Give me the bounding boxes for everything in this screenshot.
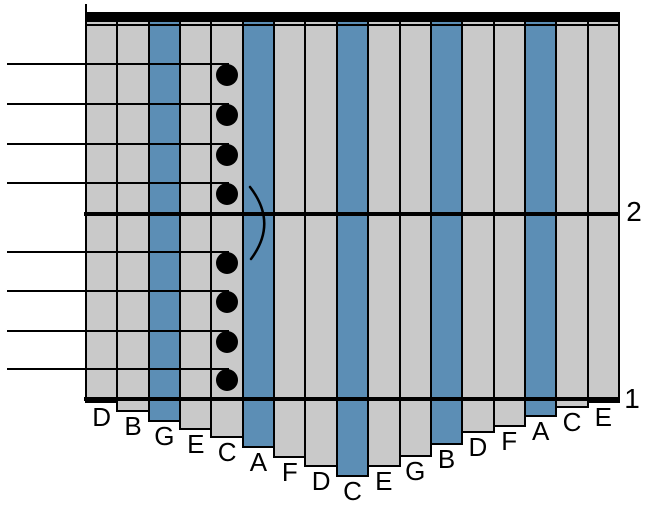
end-double-bar bbox=[85, 12, 620, 20]
tine-d-13[interactable] bbox=[461, 20, 494, 433]
tie-arc bbox=[240, 180, 286, 270]
beat-line-8 bbox=[7, 368, 229, 370]
measure-line-2 bbox=[84, 212, 618, 216]
beat-line-5 bbox=[7, 251, 229, 253]
note-dot-2-c[interactable] bbox=[216, 104, 238, 126]
note-dot-6-c[interactable] bbox=[216, 291, 238, 313]
beat-line-3 bbox=[7, 143, 229, 145]
note-dot-8-c[interactable] bbox=[216, 369, 238, 391]
tine-g-3[interactable] bbox=[148, 20, 181, 422]
note-dot-4-c[interactable] bbox=[216, 183, 238, 205]
bridge-line bbox=[85, 24, 620, 26]
measure-number-1: 1 bbox=[619, 384, 645, 413]
tine-g-11[interactable] bbox=[399, 20, 432, 457]
kalimba-tab-diagram: 2 1 DBGECAFDCEGBDFACE bbox=[0, 0, 650, 506]
tine-f-14[interactable] bbox=[493, 20, 526, 427]
tine-c-9[interactable] bbox=[336, 20, 369, 477]
beat-line-6 bbox=[7, 290, 229, 292]
note-dot-5-c[interactable] bbox=[216, 252, 238, 274]
tine-b-2[interactable] bbox=[116, 20, 149, 412]
beat-line-4 bbox=[7, 182, 229, 184]
beat-line-2 bbox=[7, 103, 229, 105]
tine-label-e-17: E bbox=[583, 403, 623, 433]
note-dot-1-c[interactable] bbox=[216, 64, 238, 86]
measure-line-1 bbox=[84, 397, 618, 401]
tine-a-15[interactable] bbox=[524, 20, 557, 417]
measure-number-2: 2 bbox=[621, 197, 647, 226]
note-dot-7-c[interactable] bbox=[216, 331, 238, 353]
tine-b-12[interactable] bbox=[430, 20, 463, 445]
beat-line-1 bbox=[7, 63, 229, 65]
beat-line-7 bbox=[7, 330, 229, 332]
note-dot-3-c[interactable] bbox=[216, 144, 238, 166]
